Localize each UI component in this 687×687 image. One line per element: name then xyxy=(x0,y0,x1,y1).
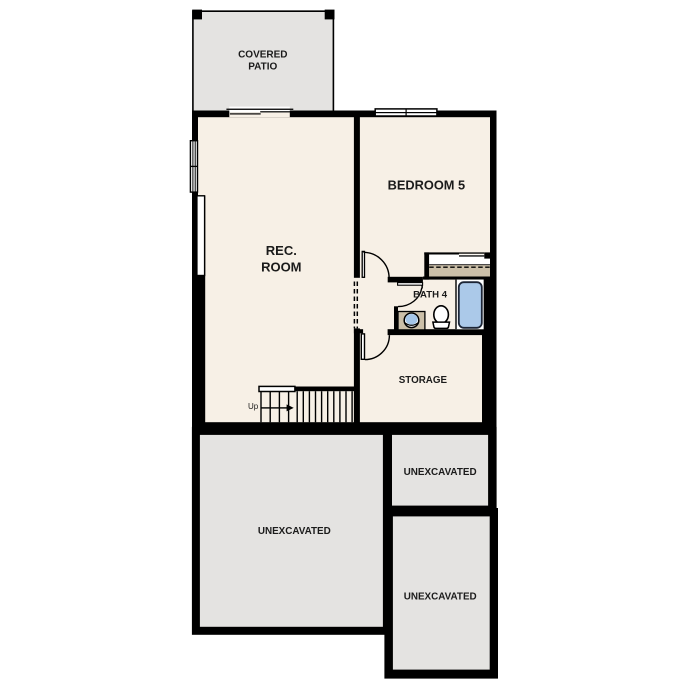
svg-text:REC.: REC. xyxy=(266,243,297,258)
svg-text:UNEXCAVATED: UNEXCAVATED xyxy=(404,592,477,603)
svg-text:ROOM: ROOM xyxy=(261,260,301,275)
svg-text:BEDROOM 5: BEDROOM 5 xyxy=(388,178,466,193)
svg-text:UNEXCAVATED: UNEXCAVATED xyxy=(258,526,331,537)
svg-text:BATH 4: BATH 4 xyxy=(413,290,448,301)
svg-text:PATIO: PATIO xyxy=(248,61,277,72)
svg-text:STORAGE: STORAGE xyxy=(399,375,448,386)
svg-text:UNEXCAVATED: UNEXCAVATED xyxy=(404,467,477,478)
svg-text:Up: Up xyxy=(248,402,259,411)
svg-text:COVERED: COVERED xyxy=(238,49,287,60)
